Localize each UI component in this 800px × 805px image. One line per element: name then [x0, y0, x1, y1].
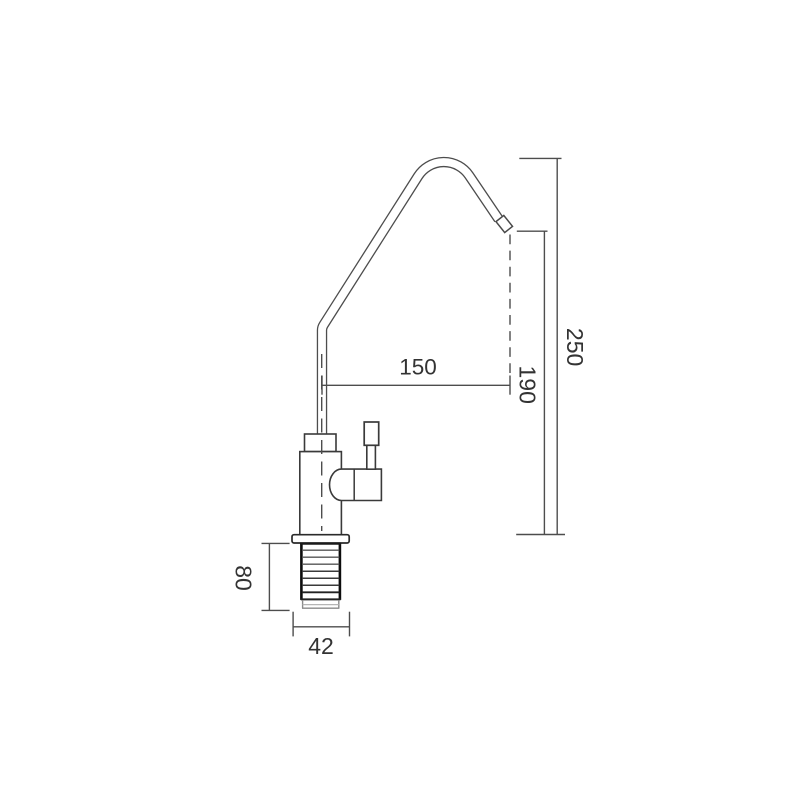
svg-text:42: 42 — [308, 633, 334, 659]
svg-text:190: 190 — [515, 366, 541, 404]
svg-text:250: 250 — [562, 328, 588, 366]
svg-text:80: 80 — [230, 565, 256, 591]
svg-text:150: 150 — [399, 355, 437, 380]
